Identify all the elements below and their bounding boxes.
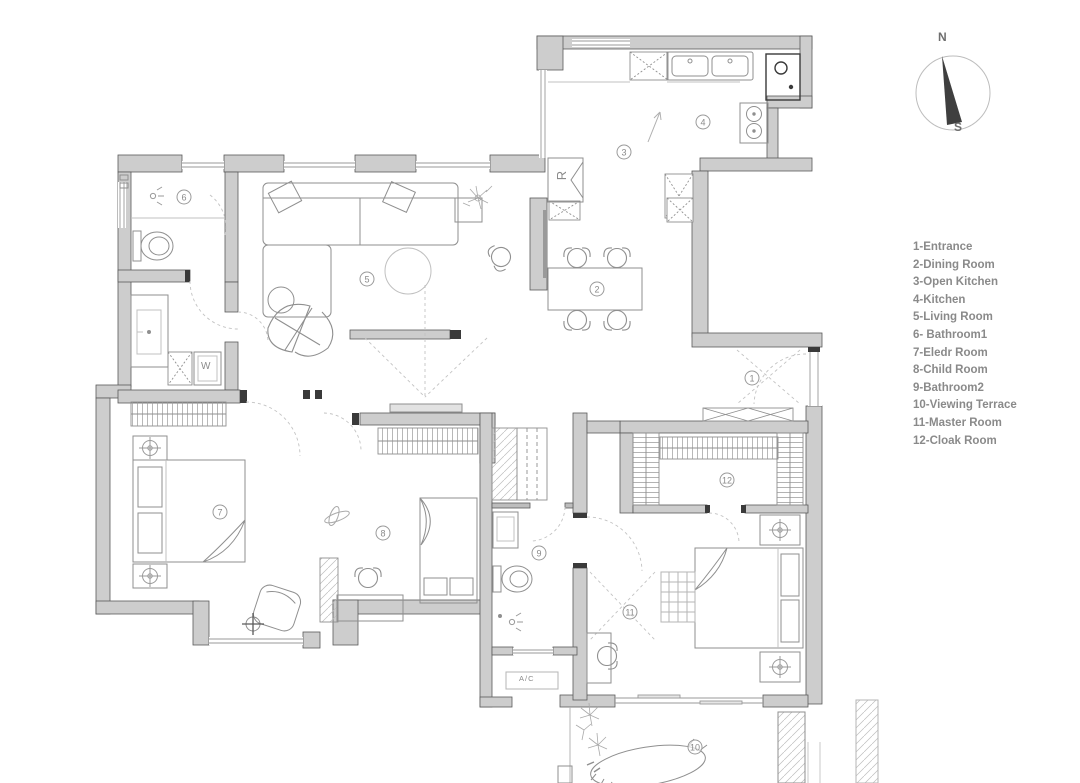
terrace-planter-right — [778, 700, 878, 783]
shoe-cabinet — [703, 408, 793, 421]
room-marker: 9 — [532, 546, 547, 561]
kitchen-cabinet-hatch — [630, 52, 668, 80]
dining-cabinet-left — [549, 201, 580, 220]
cooktop — [740, 103, 768, 143]
bed7-chair — [242, 582, 303, 635]
dining-chair — [564, 248, 590, 268]
terrace-plants — [576, 703, 607, 756]
room-marker: 4 — [696, 115, 711, 130]
room-marker: 11 — [623, 605, 638, 620]
legend-item: 10-Viewing Terrace — [913, 397, 1017, 415]
hall-shelves — [517, 428, 547, 500]
butterfly-chair — [268, 304, 333, 356]
cloak-wardrobe-left — [633, 433, 659, 505]
bed8 — [420, 498, 477, 603]
hall-console — [390, 404, 462, 412]
room-marker: 7 — [213, 505, 228, 520]
legend-item: 1-Entrance — [913, 239, 1017, 257]
room-marker: 6 — [177, 190, 192, 205]
kitchen-sink — [667, 52, 753, 80]
round-rug — [385, 248, 431, 294]
legend-item: 6- Bathroom1 — [913, 327, 1017, 345]
legend-item: 7-Eledr Room — [913, 345, 1017, 363]
bathroom1 — [120, 175, 225, 261]
dining-chair — [604, 311, 630, 331]
room-marker: 12 — [720, 473, 735, 488]
room-marker: 2 — [590, 282, 605, 297]
legend-item: 11-Master Room — [913, 415, 1017, 433]
legend-item: 9-Bathroom2 — [913, 380, 1017, 398]
legend-item: 4-Kitchen — [913, 292, 1017, 310]
counter-top-right — [766, 54, 800, 100]
compass: N S — [905, 25, 1005, 145]
compass-north-label: N — [938, 30, 947, 44]
legend-item: 12-Cloak Room — [913, 433, 1017, 451]
master-desk — [587, 633, 611, 683]
floor-plan-page: 1 2 3 4 5 6 7 8 9 10 11 12 R W A/C N S 1… — [0, 0, 1080, 783]
bed8-shelf — [320, 558, 338, 622]
lounge-chair-small — [486, 241, 515, 273]
legend-item: 2-Dining Room — [913, 257, 1017, 275]
room-marker: 1 — [745, 371, 760, 386]
vanity — [131, 295, 168, 367]
room-marker: 3 — [617, 145, 632, 160]
master-rug — [661, 572, 695, 622]
utility-cabinet — [168, 352, 192, 385]
sofa — [263, 181, 458, 317]
terrace — [558, 700, 878, 783]
hall-closet — [492, 428, 517, 500]
ac-label: A/C — [519, 674, 535, 683]
compass-south-label: S — [954, 120, 962, 134]
room-legend: 1-Entrance 2-Dining Room 3-Open Kitchen … — [913, 239, 1017, 450]
master-desk-chair — [598, 643, 618, 669]
bed7 — [133, 436, 245, 588]
cloak-wardrobe-right — [777, 433, 803, 505]
legend-item: 5-Living Room — [913, 309, 1017, 327]
legend-item: 3-Open Kitchen — [913, 274, 1017, 292]
washer-label: W — [201, 361, 210, 372]
dining-cabinet-right — [667, 198, 693, 222]
wardrobe-bed7 — [131, 402, 226, 426]
master-bed — [695, 515, 803, 682]
dining-chair — [564, 311, 590, 331]
room-marker: 5 — [360, 272, 375, 287]
legend-item: 8-Child Room — [913, 362, 1017, 380]
kitchen-arrow — [648, 112, 661, 142]
cloak-wardrobe-top — [660, 437, 778, 459]
room-marker: 10 — [688, 740, 703, 755]
bathroom2 — [493, 512, 532, 631]
wardrobe-bed8 — [378, 428, 478, 454]
compass-needle — [942, 56, 962, 125]
room-marker: 8 — [376, 526, 391, 541]
dining-chair — [604, 248, 630, 268]
fridge-label: R — [554, 171, 569, 180]
desk-chair — [355, 568, 381, 588]
toy-plane — [323, 505, 350, 527]
tv — [543, 210, 547, 278]
